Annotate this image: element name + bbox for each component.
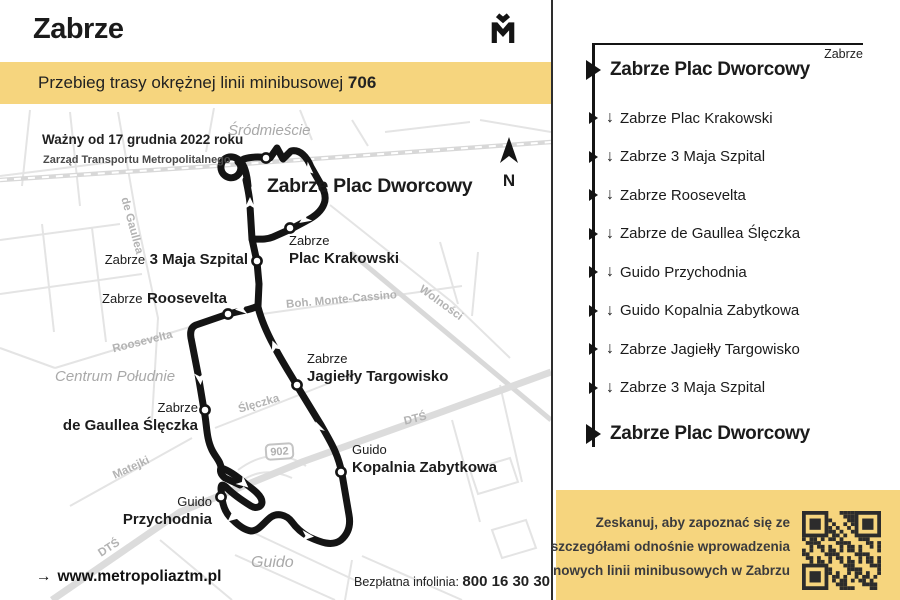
terminal-marker-icon (586, 60, 601, 80)
stop-label: Zabrze Plac Dworcowy (610, 423, 810, 445)
route-banner: Przebieg trasy okrężnej linii minibusowe… (0, 62, 551, 104)
route-line (191, 148, 350, 543)
stop-marker-icon (589, 189, 598, 201)
stop-name: Roosevelta (147, 290, 227, 307)
down-arrow-icon: ↓ (606, 379, 614, 397)
area-label-srodmiescie: Śródmieście (228, 122, 311, 139)
route-list-item: ↓ Zabrze Plac Krakowski (586, 109, 773, 127)
stop-marker (200, 405, 209, 414)
compass: N (494, 137, 524, 189)
stop-marker (261, 153, 270, 162)
stop-prefix: Zabrze (102, 291, 142, 306)
qr-info-box: Zeskanuj, aby zapoznać się ze szczegółam… (556, 490, 900, 600)
compass-letter: N (494, 171, 524, 191)
route-list-item: ↓ Zabrze 3 Maja Szpital (586, 379, 765, 397)
area-label-guido: Guido (251, 554, 294, 572)
stop-name: de Gaullea Ślęczka (63, 417, 198, 434)
area-label-centrum-poludnie: Centrum Południe (55, 368, 175, 385)
stop-prefix: Guido (177, 494, 212, 509)
stop-prefix: Zabrze (289, 233, 329, 248)
down-arrow-icon: ↓ (606, 340, 614, 358)
page-title: Zabrze (33, 13, 123, 46)
route-list-item: ↓ Zabrze de Gaullea Ślęczka (586, 225, 800, 243)
map-label-roosevelta: Zabrze Roosevelta (102, 290, 227, 308)
line-number: 706 (348, 73, 376, 92)
map-label-de-gaullea-sleczka: Zabrze de Gaullea Ślęczka (63, 399, 198, 436)
map-label-przychodnia: Guido Przychodnia (123, 493, 212, 530)
map-label-kopalnia-zabytkowa: Guido Kopalnia Zabytkowa (352, 441, 497, 478)
stop-marker-icon (589, 266, 598, 278)
validity-note: Ważny od 17 grudnia 2022 roku (42, 132, 243, 148)
stop-label: Zabrze Plac Dworcowy (610, 59, 810, 81)
stop-name: Jagiełły Targowisko (307, 368, 448, 385)
north-arrow-icon (495, 137, 523, 165)
stop-prefix: Zabrze (158, 400, 198, 415)
infoline: Bezpłatna infolinia: 800 16 30 30 (354, 573, 550, 590)
stop-marker (336, 467, 345, 476)
stop-marker-icon (589, 112, 598, 124)
infoline-number: 800 16 30 30 (462, 573, 550, 590)
stop-marker (216, 492, 225, 501)
down-arrow-icon: ↓ (606, 302, 614, 320)
metropolia-logo-icon (487, 11, 519, 45)
down-arrow-icon: ↓ (606, 148, 614, 166)
qr-instruction: Zeskanuj, aby zapoznać się ze szczegółam… (551, 511, 790, 583)
website-link[interactable]: →www.metropoliaztm.pl (36, 568, 221, 586)
operator-name: Zarząd Transportu Metropolitalnego (43, 154, 231, 167)
qr-code[interactable] (802, 511, 881, 590)
route-list-item-terminal-end: Zabrze Plac Dworcowy (586, 423, 810, 445)
stop-name: Przychodnia (123, 511, 212, 528)
qr-instruction-line: Zeskanuj, aby zapoznać się ze (551, 511, 790, 535)
map-area: Ważny od 17 grudnia 2022 roku Zarząd Tra… (0, 104, 551, 600)
stop-marker-icon (589, 151, 598, 163)
down-arrow-icon: ↓ (606, 225, 614, 243)
stop-prefix: Zabrze (105, 252, 145, 267)
stop-name: 3 Maja Szpital (150, 251, 248, 268)
route-list-item: ↓ Zabrze Roosevelta (586, 186, 746, 204)
direction-arrows (194, 162, 325, 543)
route-list-item: ↓ Zabrze Jagiełły Targowisko (586, 340, 800, 358)
page: Zabrze Przebieg trasy okrężnej linii min… (0, 0, 900, 600)
stop-prefix: Zabrze (307, 351, 347, 366)
stop-label: Guido Kopalnia Zabytkowa (620, 302, 799, 319)
stop-marker (223, 309, 232, 318)
stop-label: Zabrze Jagiełły Targowisko (620, 341, 800, 358)
stop-marker (292, 380, 301, 389)
stop-label: Zabrze 3 Maja Szpital (620, 379, 765, 396)
list-top-rule (592, 43, 863, 45)
route-list-item: ↓ Zabrze 3 Maja Szpital (586, 148, 765, 166)
map-panel: Zabrze Przebieg trasy okrężnej linii min… (0, 0, 551, 600)
stop-prefix: Guido (352, 442, 387, 457)
banner-description: Przebieg trasy okrężnej linii minibusowe… (38, 73, 343, 92)
route-list-item-terminal-start: Zabrze Plac Dworcowy (586, 59, 810, 81)
map-label-plac-dworcowy: Zabrze Plac Dworcowy (267, 175, 472, 197)
website-url: www.metropoliaztm.pl (58, 568, 222, 585)
down-arrow-icon: ↓ (606, 263, 614, 281)
stop-label: Zabrze Plac Krakowski (620, 110, 773, 127)
stop-label: Zabrze 3 Maja Szpital (620, 148, 765, 165)
map-label-jagielly-targowisko: Zabrze Jagiełły Targowisko (307, 350, 448, 387)
stop-name: Plac Krakowski (289, 250, 399, 267)
down-arrow-icon: ↓ (606, 109, 614, 127)
stop-marker-icon (589, 343, 598, 355)
route-list-item: ↓ Guido Przychodnia (586, 263, 747, 281)
stop-label: Guido Przychodnia (620, 264, 747, 281)
qr-instruction-line: szczegółami odnośnie wprowadzenia (551, 535, 790, 559)
down-arrow-icon: ↓ (606, 186, 614, 204)
terminal-marker-icon (586, 424, 601, 444)
route-list-item: ↓ Guido Kopalnia Zabytkowa (586, 302, 799, 320)
stop-label: Zabrze Roosevelta (620, 187, 746, 204)
qr-instruction-line: nowych linii minibusowych w Zabrzu (551, 559, 790, 583)
road-shield-902: 902 (264, 442, 294, 461)
corner-city-label: Zabrze (824, 47, 863, 61)
stop-marker-icon (589, 228, 598, 240)
arrow-right-icon: → (36, 568, 52, 585)
map-label-plac-krakowski: Zabrze Plac Krakowski (289, 232, 399, 269)
stop-label: Zabrze de Gaullea Ślęczka (620, 225, 800, 242)
route-list-panel: Zabrze Zabrze Plac Dworcowy ↓ Zabrze Pla… (553, 0, 900, 600)
stop-marker-icon (589, 305, 598, 317)
banner-text: Przebieg trasy okrężnej linii minibusowe… (38, 73, 376, 93)
stop-marker-icon (589, 382, 598, 394)
stop-name: Kopalnia Zabytkowa (352, 459, 497, 476)
map-label-3-maja-szpital: Zabrze 3 Maja Szpital (105, 251, 248, 269)
infoline-label: Bezpłatna infolinia: (354, 575, 459, 589)
stop-marker (252, 256, 261, 265)
